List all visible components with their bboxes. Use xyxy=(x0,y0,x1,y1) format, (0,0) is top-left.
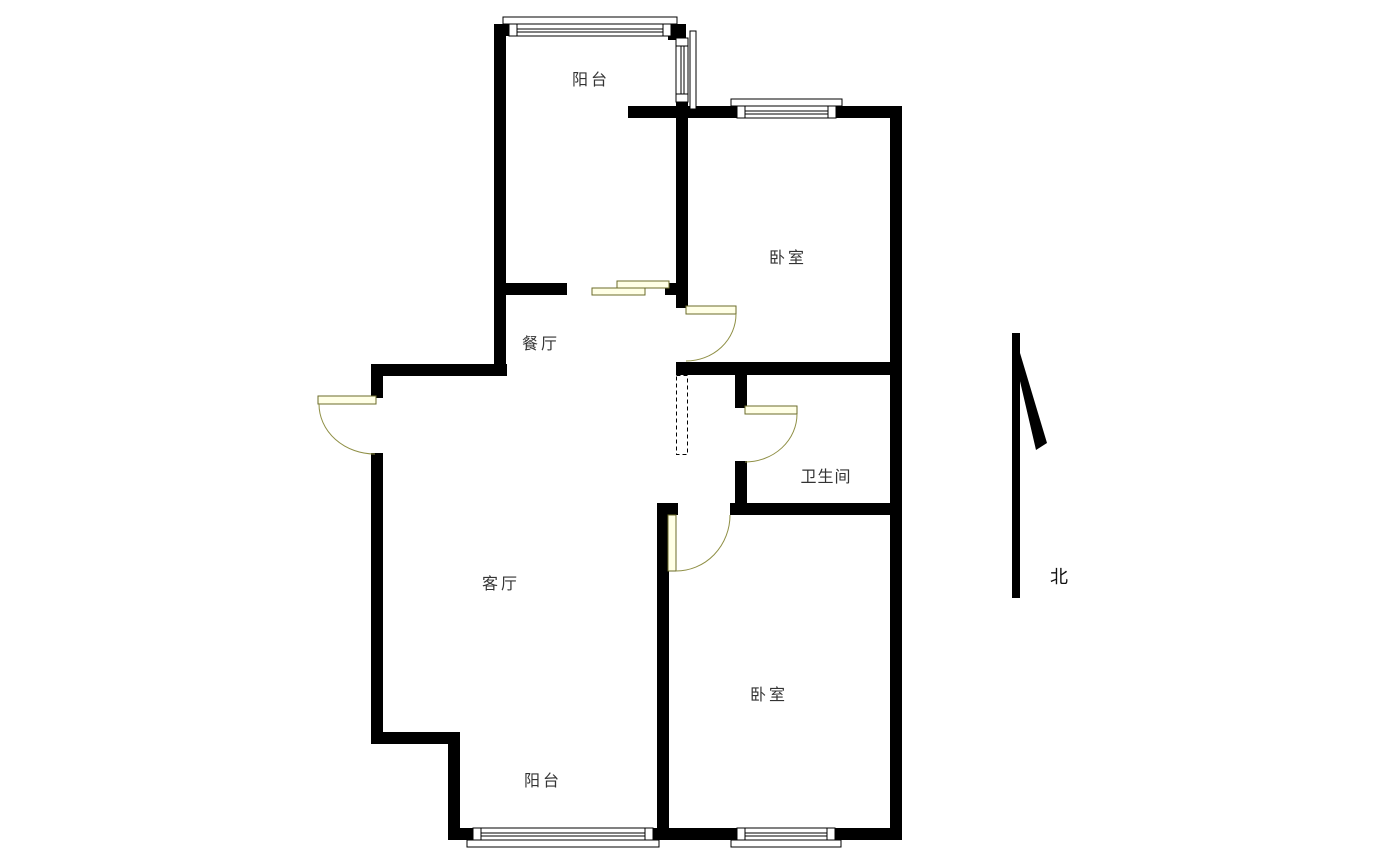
balcony-sliding-door xyxy=(592,281,669,295)
wall-bedroom-bottom-left xyxy=(657,503,669,840)
wall-right-outer xyxy=(890,106,902,840)
wall-balcony-left xyxy=(494,24,506,376)
room-label-bedroom-bottom: 卧室 xyxy=(750,681,788,705)
wall-bottom-b xyxy=(653,828,737,840)
bedroom-top-swing-door xyxy=(686,306,736,361)
wall-bedroom-top-left xyxy=(676,102,688,308)
room-label-balcony-top: 阳台 xyxy=(572,66,610,90)
room-label-bedroom-top: 卧室 xyxy=(769,244,807,268)
wall-living-left-lower xyxy=(371,453,383,744)
bedroom-bottom-window xyxy=(731,828,841,847)
walls xyxy=(371,24,902,840)
wall-bedroom-top-bottom xyxy=(676,362,902,375)
wall-bottom-c xyxy=(835,828,902,840)
compass-north-label: 北 xyxy=(1050,563,1068,589)
wall-balcony-bottom-left xyxy=(448,732,460,840)
wall-bathroom-left-upper xyxy=(735,375,747,408)
bathroom-swing-door xyxy=(745,406,797,462)
wall-dining-top-a xyxy=(494,283,567,295)
floor-plan-canvas: 阳台 卧室 餐厅 客厅 卫生间 卧室 阳台 北 xyxy=(0,0,1385,862)
wall-bottom-a xyxy=(448,828,473,840)
entry-swing-door xyxy=(318,396,376,454)
wall-living-bottom-step xyxy=(371,732,460,744)
room-label-bathroom: 卫生间 xyxy=(800,463,851,487)
bedroom-bottom-swing-door xyxy=(668,515,730,571)
wall-bathroom-bottom-b xyxy=(730,503,902,515)
room-label-balcony-bottom: 阳台 xyxy=(524,767,562,791)
balcony-side-window xyxy=(676,31,696,109)
floor-plan-drawing xyxy=(0,0,1385,862)
bedroom-top-window xyxy=(731,99,842,118)
wall-living-top xyxy=(371,364,507,376)
north-arrow-icon xyxy=(1012,333,1047,598)
wall-bedroom-top-a xyxy=(628,106,737,118)
room-label-living-room: 客厅 xyxy=(482,570,520,594)
wall-bathroom-bottom-a xyxy=(657,503,678,515)
duct-shaft-dashed xyxy=(677,376,688,455)
room-label-dining-room: 餐厅 xyxy=(522,330,560,354)
balcony-top-window xyxy=(503,17,677,36)
balcony-bottom-window xyxy=(467,828,659,847)
wall-bedroom-top-b xyxy=(836,106,902,118)
